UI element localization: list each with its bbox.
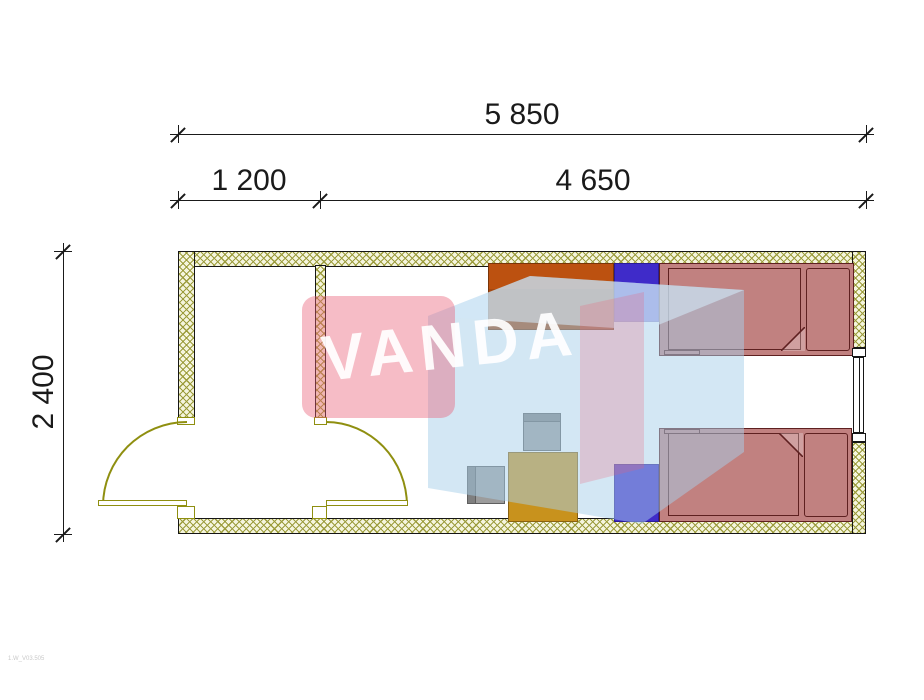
bed-2-blanket-fold [779,433,803,457]
drawing-code: 1.W_V03.505 [8,656,44,662]
bed-2-pillow [804,433,848,517]
bed-1-blanket-fold [781,327,805,351]
interior-door-swing-arc [326,421,408,506]
nightstand-1 [614,263,659,322]
interior-door-leaf [326,500,408,506]
wall-left [178,251,195,424]
nightstand-2 [614,464,659,522]
partition-wall [315,265,326,419]
dimension-label-total-width: 5 850 [422,100,622,130]
bed-2 [659,428,852,522]
wall-right-upper [852,251,866,348]
chair-1 [523,413,561,451]
desk-table [508,452,578,522]
window-jamb [852,433,866,442]
bed-1-pillow [806,268,850,351]
door-jamb [312,506,327,519]
wardrobe-shading [489,289,613,329]
dimension-line-split-width [170,200,874,201]
window-jamb [852,348,866,357]
chair-2 [467,466,505,504]
dimension-label-vestibule-width: 1 200 [169,166,329,196]
chair-2-backrest [468,467,476,503]
dimension-line-height [63,243,64,542]
bed-1-footboard [664,350,700,355]
wardrobe [488,263,614,330]
entry-door-leaf [98,500,187,506]
bed-1 [659,263,854,356]
window [853,357,864,433]
dimension-label-height: 2 400 [29,332,59,452]
dimension-line-total-width [170,134,874,135]
bed-2-footboard [664,429,700,434]
chair-1-backrest [524,414,560,422]
door-jamb [177,506,195,519]
entry-door-swing-arc [102,421,187,506]
wall-right-lower [852,442,866,534]
dimension-label-room-width: 4 650 [513,166,673,196]
floor-plan-drawing: VANDA 5 850 1 200 4 650 2 400 1.W_V03.50… [0,0,924,700]
